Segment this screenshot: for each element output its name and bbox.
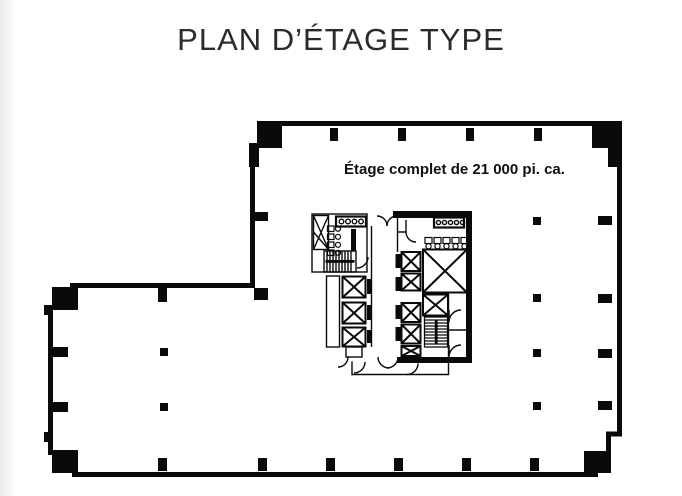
sink-icon — [336, 217, 366, 227]
column-marker — [533, 349, 541, 357]
column-marker — [533, 217, 541, 225]
wall-wing-north-and-upper-west — [70, 156, 253, 286]
column-marker — [258, 458, 267, 471]
elevator-icon — [402, 252, 421, 271]
corner-wing-top-left — [52, 287, 78, 310]
elevator-bank-right — [402, 252, 421, 356]
door-swing-icon — [407, 364, 418, 375]
door-swing-icon — [354, 362, 365, 373]
central-core — [312, 211, 472, 375]
washroom-right — [398, 218, 469, 249]
elevator-lobby — [372, 216, 399, 368]
elevator-icon — [402, 303, 421, 322]
shaft-large — [423, 250, 467, 293]
elevator-jambs-right — [396, 254, 401, 341]
column-marker — [394, 458, 403, 471]
corner-top-left-step — [249, 143, 259, 167]
elevator-bank-left — [343, 277, 366, 347]
shaft-mid — [423, 295, 448, 316]
core-south-wall — [397, 357, 472, 363]
door-swing-icon — [378, 357, 389, 368]
column-marker — [160, 403, 168, 411]
entry-partition — [398, 220, 407, 232]
elevator-icon — [343, 328, 366, 347]
corner-wing-top-left-step — [44, 305, 53, 315]
vestibule-south — [352, 362, 449, 375]
column-marker — [398, 128, 406, 141]
elevator-icon — [402, 325, 421, 344]
column-marker — [533, 402, 541, 410]
door-swing-icon — [338, 357, 348, 367]
column-marker — [160, 348, 168, 356]
wall-stub — [351, 229, 356, 251]
column-marker — [466, 128, 474, 141]
column-marker — [53, 347, 68, 357]
door-swing-icon — [449, 345, 461, 357]
column-marker — [326, 458, 335, 471]
column-marker — [53, 402, 68, 412]
scissor-stair-icon — [314, 216, 329, 250]
elevator-icon — [402, 274, 421, 291]
column-marker — [158, 288, 167, 302]
door-swing-icon — [449, 310, 461, 322]
corner-bottom-left-step — [44, 432, 53, 442]
column-marker — [598, 216, 612, 225]
column-marker — [598, 349, 612, 358]
door-swing-icon — [387, 357, 398, 368]
column-marker — [462, 458, 471, 471]
column-marker — [534, 128, 542, 141]
column-marker — [330, 128, 338, 141]
service-closet — [338, 347, 362, 367]
elevator-icon — [343, 303, 366, 324]
stairs-icon — [425, 317, 448, 347]
column-marker — [598, 294, 612, 303]
column-marker — [254, 288, 268, 300]
column-marker — [598, 401, 612, 410]
door-swing-icon — [377, 216, 387, 226]
sink-icon — [434, 218, 465, 228]
column-marker — [255, 212, 268, 221]
corner-top-right-step — [608, 143, 620, 167]
column-markers — [53, 128, 612, 471]
column-marker — [530, 458, 539, 471]
core-east-rooms — [449, 294, 467, 357]
floor-plan-drawing — [0, 0, 682, 496]
elevator-icon — [402, 346, 421, 356]
urinal-icons — [425, 238, 468, 249]
corridor — [327, 276, 340, 347]
corner-bottom-right — [584, 451, 611, 473]
corner-bottom-left — [52, 450, 78, 473]
washroom-left — [312, 214, 368, 272]
corner-top-left — [257, 121, 282, 148]
column-marker — [533, 294, 541, 302]
door-swing-icon — [406, 232, 416, 242]
column-marker — [158, 458, 167, 471]
elevator-icon — [343, 277, 366, 298]
